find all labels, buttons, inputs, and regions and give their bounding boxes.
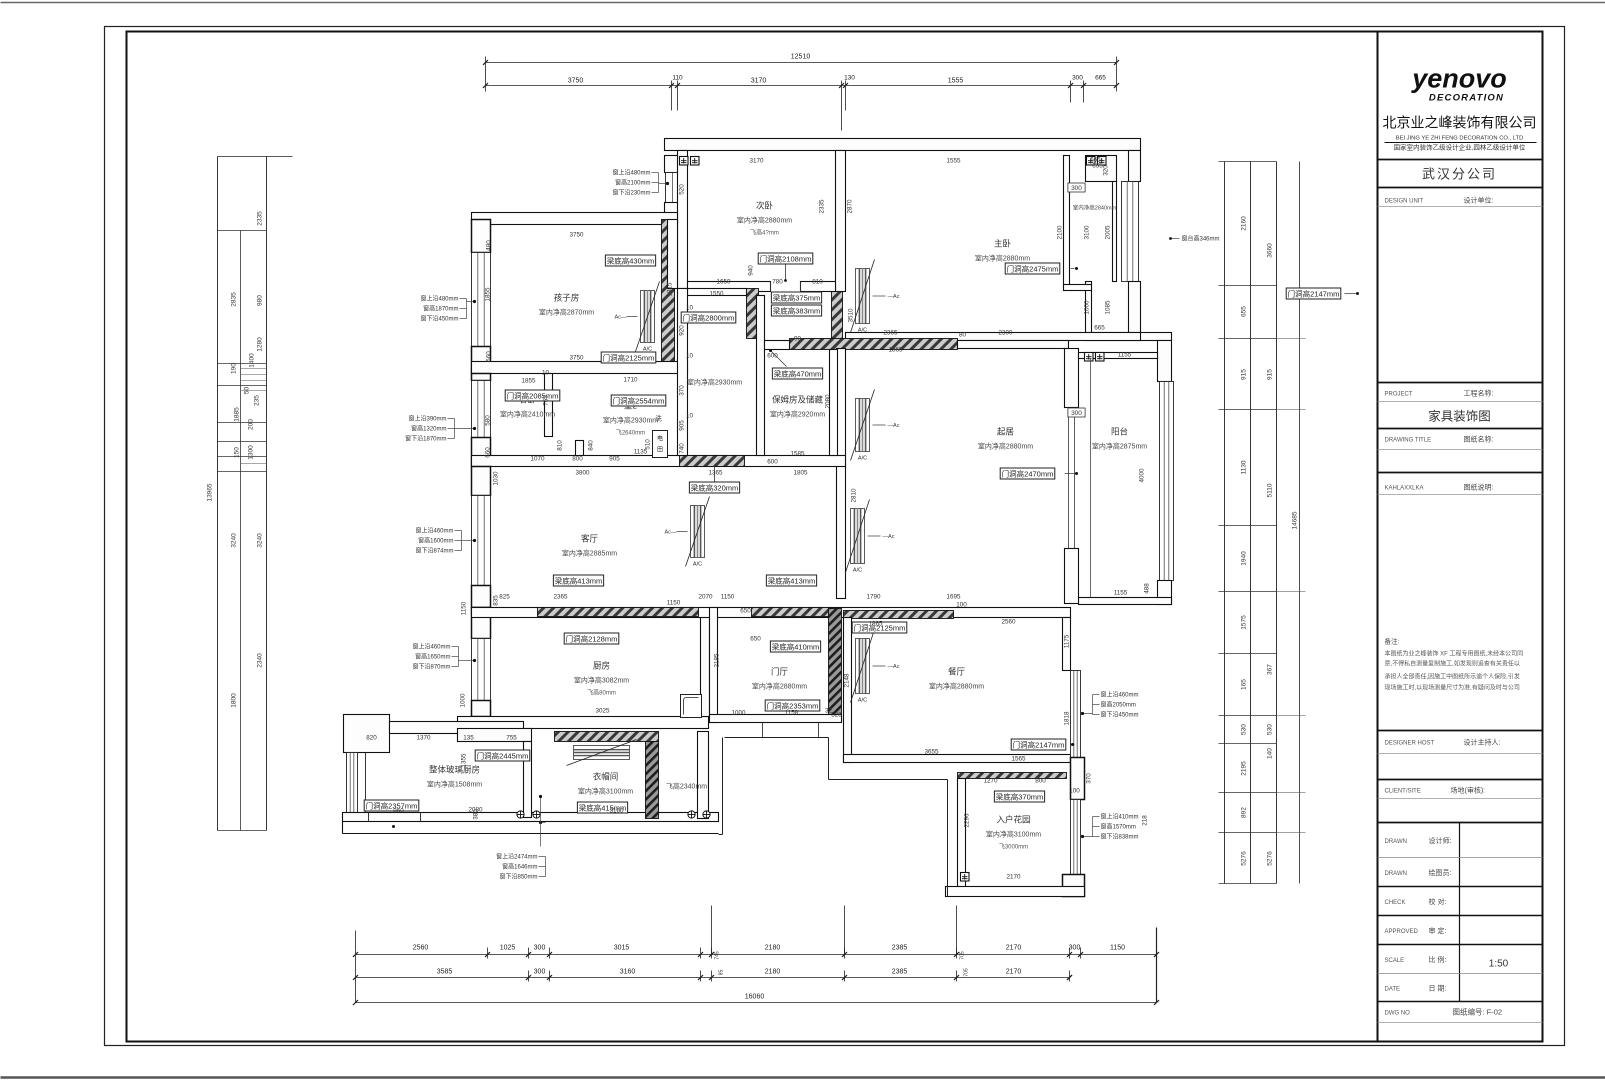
svg-text:3510: 3510 [848, 308, 855, 323]
svg-text:室内净高2930mm: 室内净高2930mm [687, 378, 742, 387]
svg-text:600: 600 [767, 353, 778, 360]
svg-text:2365: 2365 [553, 594, 568, 601]
svg-text:门洞高2147mm: 门洞高2147mm [1013, 740, 1065, 750]
svg-text:2170: 2170 [1006, 874, 1021, 881]
svg-text:1555: 1555 [946, 158, 961, 165]
svg-text:窗上沿390mm: 窗上沿390mm [408, 415, 446, 423]
svg-text:洗: 洗 [655, 414, 662, 423]
svg-text:840: 840 [588, 440, 595, 451]
svg-text:600: 600 [767, 459, 778, 466]
svg-text:810: 810 [812, 279, 823, 286]
svg-text:梁底高410mm: 梁底高410mm [772, 642, 820, 652]
svg-text:2560: 2560 [1001, 619, 1016, 626]
svg-text:5110: 5110 [1267, 483, 1274, 497]
svg-text:1565: 1565 [1011, 756, 1026, 763]
svg-text:5276: 5276 [1241, 851, 1248, 866]
svg-text:1000: 1000 [1084, 300, 1091, 315]
svg-text:2385: 2385 [892, 969, 908, 976]
svg-text:920: 920 [679, 325, 686, 336]
svg-text:APPROVED: APPROVED [1385, 929, 1419, 935]
svg-text:1025: 1025 [500, 945, 516, 952]
svg-text:窗下沿230mm: 窗下沿230mm [612, 189, 650, 197]
svg-text:设计单位:: 设计单位: [1464, 196, 1494, 205]
svg-text:DWG NO: DWG NO [1385, 1011, 1411, 1017]
svg-text:2005: 2005 [1105, 225, 1112, 240]
svg-text:门厅: 门厅 [771, 667, 789, 677]
svg-text:整体玻璃厨房: 整体玻璃厨房 [429, 765, 480, 775]
svg-text:飞3000mm: 飞3000mm [999, 844, 1028, 851]
svg-text:2296: 2296 [964, 813, 971, 828]
svg-text:1790: 1790 [866, 594, 881, 601]
svg-text:300: 300 [1071, 185, 1082, 192]
svg-text:300: 300 [1071, 410, 1082, 417]
svg-text:140: 140 [1267, 748, 1274, 759]
svg-text:1695: 1695 [946, 594, 961, 601]
svg-text:窗高1650mm: 窗高1650mm [415, 653, 450, 661]
svg-text:905: 905 [679, 420, 686, 431]
svg-text:飞高2340mm: 飞高2340mm [666, 782, 707, 791]
svg-text:CHECK: CHECK [1385, 900, 1406, 906]
svg-text:2560: 2560 [413, 945, 429, 952]
svg-text:800: 800 [572, 456, 583, 463]
svg-text:门洞高2554mm: 门洞高2554mm [613, 396, 665, 406]
svg-text:580: 580 [485, 415, 492, 426]
svg-text:门洞高2800mm: 门洞高2800mm [683, 313, 735, 323]
svg-text:1805: 1805 [793, 470, 808, 477]
svg-text:370: 370 [679, 385, 686, 396]
svg-text:1030: 1030 [493, 471, 500, 486]
svg-text:1585: 1585 [790, 451, 805, 458]
svg-text:—Ac: —Ac [888, 664, 900, 670]
svg-text:窗上沿410mm: 窗上沿410mm [1101, 813, 1139, 821]
svg-text:A/C: A/C [858, 698, 867, 704]
svg-text:A/C: A/C [693, 562, 702, 568]
svg-text:1150: 1150 [667, 600, 681, 607]
svg-text:DESIGN UNIT: DESIGN UNIT [1385, 199, 1424, 205]
svg-text:90: 90 [794, 336, 802, 343]
svg-text:2100: 2100 [1057, 225, 1064, 240]
svg-text:1575: 1575 [1241, 615, 1248, 630]
svg-text:武汉分公司: 武汉分公司 [1422, 167, 1497, 182]
svg-text:530: 530 [1241, 724, 1248, 735]
svg-text:2148: 2148 [844, 673, 851, 688]
svg-text:530: 530 [1267, 724, 1274, 735]
svg-text:2070: 2070 [698, 594, 713, 601]
svg-text:1815: 1815 [667, 282, 674, 297]
svg-text:50: 50 [244, 387, 251, 395]
svg-text:480: 480 [486, 240, 493, 251]
svg-text:13965: 13965 [207, 483, 214, 501]
svg-text:窗高1320mm: 窗高1320mm [411, 425, 446, 433]
svg-text:室内净高2880mm: 室内净高2880mm [975, 254, 1030, 263]
svg-text:655: 655 [1241, 306, 1248, 317]
svg-text:200: 200 [248, 419, 255, 430]
svg-text:3100: 3100 [1084, 225, 1091, 240]
svg-text:阳台: 阳台 [1111, 427, 1128, 437]
svg-text:意,不得私自测量复制施工,如发现则追查有关责任以: 意,不得私自测量复制施工,如发现则追查有关责任以 [1385, 660, 1520, 668]
svg-text:1130: 1130 [1241, 460, 1248, 474]
svg-text:1085: 1085 [1105, 300, 1112, 315]
svg-text:4000: 4000 [1139, 468, 1146, 483]
svg-text:门洞高2357mm: 门洞高2357mm [366, 801, 418, 811]
svg-text:218: 218 [1142, 815, 1149, 826]
svg-text:窗下沿450mm: 窗下沿450mm [420, 315, 458, 323]
svg-text:衣帽间: 衣帽间 [593, 772, 619, 782]
svg-text:3170: 3170 [749, 158, 764, 165]
svg-text:BEI JING YE ZHI FENG DECORATIO: BEI JING YE ZHI FENG DECORATION CO., LTD [1396, 136, 1524, 142]
svg-text:380: 380 [473, 809, 480, 820]
svg-text:Ac—: Ac— [615, 315, 627, 321]
svg-text:2180: 2180 [765, 969, 781, 976]
svg-text:田: 田 [657, 447, 663, 454]
svg-text:745: 745 [715, 951, 721, 960]
svg-text:DRAWING TITLE: DRAWING TITLE [1385, 438, 1432, 444]
svg-text:800: 800 [1035, 778, 1046, 785]
svg-text:1855: 1855 [485, 287, 492, 302]
svg-text:家具装饰图: 家具装饰图 [1428, 409, 1491, 424]
svg-text:190: 190 [231, 363, 238, 374]
svg-text:DRAWN: DRAWN [1385, 839, 1407, 845]
svg-text:10: 10 [686, 413, 694, 420]
svg-text:承担人全部责任,因施工中图纸所示逾个人保险,引发: 承担人全部责任,因施工中图纸所示逾个人保险,引发 [1385, 673, 1520, 681]
svg-text:门洞高2147mm: 门洞高2147mm [1288, 289, 1340, 299]
svg-text:1710: 1710 [623, 377, 638, 384]
svg-text:1270: 1270 [983, 778, 998, 785]
svg-text:510: 510 [645, 439, 652, 450]
svg-text:3160: 3160 [609, 808, 624, 815]
svg-text:1155: 1155 [1118, 352, 1132, 359]
svg-text:2170: 2170 [1006, 969, 1022, 976]
svg-text:130: 130 [844, 75, 855, 82]
svg-text:915: 915 [1241, 369, 1248, 380]
svg-text:1550: 1550 [709, 291, 724, 298]
svg-text:SCALE: SCALE [1385, 958, 1405, 964]
svg-text:915: 915 [1267, 369, 1274, 380]
svg-text:1400: 1400 [249, 353, 256, 368]
svg-text:PROJECT: PROJECT [1385, 392, 1413, 398]
svg-text:1300: 1300 [248, 445, 255, 460]
svg-text:3585: 3585 [437, 969, 453, 976]
svg-text:窗下沿450mm: 窗下沿450mm [1101, 711, 1139, 719]
svg-text:DRAWN: DRAWN [1385, 871, 1407, 877]
svg-text:755: 755 [506, 735, 517, 742]
svg-text:2080: 2080 [825, 394, 832, 409]
svg-text:孩子房: 孩子房 [554, 293, 580, 303]
svg-text:起居: 起居 [997, 427, 1014, 437]
svg-text:窗高1870mm: 窗高1870mm [423, 305, 458, 313]
svg-text:1940: 1940 [1241, 551, 1248, 566]
svg-text:场地(审核):: 场地(审核): [1451, 786, 1486, 795]
svg-text:165: 165 [1241, 679, 1248, 690]
svg-text:窗下沿870mm: 窗下沿870mm [412, 663, 450, 671]
svg-text:窗上沿460mm: 窗上沿460mm [415, 527, 453, 535]
svg-text:设计师:: 设计师: [1429, 836, 1452, 845]
svg-text:梁底高430mm: 梁底高430mm [607, 256, 655, 266]
svg-text:室内净高2875mm: 室内净高2875mm [1092, 442, 1147, 451]
svg-text:1818: 1818 [1064, 711, 1071, 726]
svg-text:320: 320 [1103, 165, 1110, 176]
svg-text:窗高1570mm: 窗高1570mm [1101, 823, 1136, 831]
svg-text:300: 300 [534, 969, 546, 976]
svg-text:1000: 1000 [460, 693, 467, 708]
svg-text:次卧: 次卧 [756, 201, 774, 211]
svg-text:梁底高413mm: 梁底高413mm [768, 576, 816, 586]
svg-text:主卧: 主卧 [994, 239, 1012, 249]
svg-text:窗高1600mm: 窗高1600mm [418, 537, 453, 545]
svg-text:2870: 2870 [847, 199, 854, 214]
svg-text:2365: 2365 [883, 330, 898, 337]
svg-text:300: 300 [1072, 75, 1083, 82]
svg-text:825: 825 [499, 594, 510, 601]
svg-text:85: 85 [719, 970, 725, 976]
svg-text:14685: 14685 [1292, 511, 1299, 529]
svg-text:室内净高1508mm: 室内净高1508mm [427, 780, 482, 789]
svg-text:367: 367 [1267, 664, 1274, 675]
svg-text:图纸说明:: 图纸说明: [1464, 483, 1494, 492]
svg-text:1150: 1150 [721, 594, 735, 601]
svg-text:300: 300 [534, 945, 546, 952]
svg-text:门洞高2445mm: 门洞高2445mm [477, 751, 529, 761]
svg-text:—Ac: —Ac [888, 294, 900, 300]
svg-text:窗台高346mm: 窗台高346mm [1182, 235, 1220, 243]
svg-text:940: 940 [748, 265, 755, 276]
svg-text:备注:: 备注: [1385, 637, 1400, 646]
svg-text:2185: 2185 [714, 653, 721, 668]
svg-text:2385: 2385 [892, 945, 908, 952]
svg-text:日 期:: 日 期: [1429, 985, 1447, 993]
svg-text:3170: 3170 [751, 78, 767, 85]
svg-text:665: 665 [1090, 157, 1101, 164]
svg-text:本图纸为业之峰装饰 XF 工程专用图纸,未经本公司同: 本图纸为业之峰装饰 XF 工程专用图纸,未经本公司同 [1385, 650, 1524, 658]
svg-text:1150: 1150 [461, 601, 468, 615]
svg-text:A/C: A/C [858, 456, 867, 462]
svg-text:窗上沿480mm: 窗上沿480mm [612, 169, 650, 177]
svg-text:780: 780 [772, 279, 783, 286]
svg-text:窗下沿838mm: 窗下沿838mm [1101, 833, 1139, 841]
svg-text:1000: 1000 [731, 710, 746, 717]
svg-text:室内净高2870mm: 室内净高2870mm [539, 308, 594, 317]
svg-text:客厅: 客厅 [581, 534, 599, 544]
svg-text:室内净高2885mm: 室内净高2885mm [562, 549, 617, 558]
svg-text:80: 80 [959, 332, 967, 339]
svg-text:电: 电 [657, 435, 663, 443]
svg-text:2195: 2195 [1241, 761, 1248, 776]
svg-text:1555: 1555 [948, 78, 964, 85]
svg-text:660: 660 [485, 447, 492, 458]
svg-text:1155: 1155 [1114, 590, 1128, 597]
svg-text:门洞高2475mm: 门洞高2475mm [1007, 264, 1059, 274]
svg-text:窗高2100mm: 窗高2100mm [615, 179, 650, 187]
svg-text:1865: 1865 [888, 347, 903, 354]
svg-text:A/C: A/C [858, 328, 867, 334]
svg-text:绘图员:: 绘图员: [1429, 868, 1452, 877]
svg-text:校 对:: 校 对: [1429, 897, 1447, 906]
svg-text:审 定:: 审 定: [1429, 926, 1447, 935]
svg-text:2335: 2335 [819, 199, 826, 214]
svg-text:835: 835 [493, 595, 500, 606]
svg-text:328: 328 [831, 712, 842, 719]
svg-text:1280: 1280 [257, 337, 264, 352]
svg-text:3750: 3750 [569, 232, 584, 239]
svg-text:门洞高2085mm: 门洞高2085mm [507, 391, 559, 401]
svg-text:980: 980 [257, 295, 264, 306]
svg-text:室内净高3100mm: 室内净高3100mm [578, 787, 633, 796]
svg-text:1650: 1650 [716, 279, 731, 286]
svg-text:1158: 1158 [785, 710, 799, 717]
svg-text:12510: 12510 [791, 54, 811, 61]
svg-text:905: 905 [609, 456, 620, 463]
svg-text:2340: 2340 [257, 653, 264, 668]
svg-text:3025: 3025 [595, 708, 610, 715]
svg-text:100: 100 [1069, 788, 1080, 795]
svg-text:2160: 2160 [1241, 216, 1248, 231]
svg-text:室内净高2880mm: 室内净高2880mm [978, 442, 1033, 451]
svg-text:窗下沿850mm: 窗下沿850mm [499, 873, 537, 881]
svg-text:892: 892 [1241, 807, 1248, 818]
svg-text:520: 520 [679, 184, 686, 195]
svg-text:梁底高413mm: 梁底高413mm [555, 576, 603, 586]
svg-text:窗上沿480mm: 窗上沿480mm [420, 295, 458, 303]
svg-text:保姆房及储藏: 保姆房及储藏 [772, 395, 824, 405]
svg-text:3800: 3800 [575, 470, 590, 477]
svg-text:1070: 1070 [530, 456, 545, 463]
svg-text:飞高4?mm: 飞高4?mm [750, 229, 779, 237]
svg-text:1865: 1865 [868, 621, 883, 628]
svg-text:135: 135 [463, 735, 474, 742]
svg-text:室内净高2930mm: 室内净高2930mm [603, 416, 658, 425]
svg-text:门洞高2125mm: 门洞高2125mm [603, 353, 655, 363]
svg-text:2170: 2170 [1006, 945, 1022, 952]
svg-text:810: 810 [557, 440, 564, 451]
svg-text:Ac—: Ac— [665, 530, 677, 536]
svg-text:110: 110 [672, 75, 683, 82]
svg-text:300: 300 [1069, 945, 1081, 952]
svg-text:室内净高3100mm: 室内净高3100mm [986, 830, 1041, 839]
svg-text:1885: 1885 [234, 407, 241, 422]
svg-text:2300: 2300 [998, 330, 1013, 337]
svg-text:梁底高375mm: 梁底高375mm [773, 293, 821, 303]
svg-text:2835: 2835 [231, 292, 238, 307]
svg-text:梁底高383mm: 梁底高383mm [773, 306, 821, 316]
svg-text:1:50: 1:50 [1489, 959, 1509, 970]
svg-text:KAHLAXXLKA: KAHLAXXLKA [1385, 486, 1424, 492]
svg-text:1175: 1175 [1064, 634, 1071, 648]
svg-text:门洞高2470mm: 门洞高2470mm [1002, 469, 1054, 479]
svg-text:窗上沿460mm: 窗上沿460mm [1101, 691, 1139, 699]
svg-text:窗下沿874mm: 窗下沿874mm [415, 547, 453, 555]
svg-text:705: 705 [964, 968, 970, 977]
svg-text:3750: 3750 [568, 78, 584, 85]
svg-text:960: 960 [393, 808, 404, 815]
svg-text:室内净高2410mm: 室内净高2410mm [500, 410, 555, 419]
svg-text:国家室内装饰乙级设计企业,园林乙级设计单位: 国家室内装饰乙级设计企业,园林乙级设计单位 [1394, 143, 1526, 152]
svg-text:665: 665 [1095, 75, 1106, 82]
svg-text:CLIENT/SITE: CLIENT/SITE [1385, 789, 1421, 795]
svg-text:560: 560 [486, 351, 493, 362]
svg-text:梁底高320mm: 梁底高320mm [691, 483, 739, 493]
svg-text:1800: 1800 [231, 693, 238, 708]
svg-text:10: 10 [686, 305, 694, 312]
svg-text:665: 665 [1094, 325, 1105, 332]
svg-text:室内净高2920mm: 室内净高2920mm [770, 410, 825, 419]
svg-text:窗高1646mm: 窗高1646mm [502, 863, 537, 871]
svg-text:3660: 3660 [1267, 243, 1274, 258]
svg-text:DECORATION: DECORATION [1429, 93, 1504, 104]
svg-text:室内净高2840mm: 室内净高2840mm [1073, 204, 1117, 212]
svg-text:A/C: A/C [853, 568, 862, 574]
svg-text:—Ac: —Ac [883, 534, 895, 540]
svg-text:100: 100 [956, 602, 967, 609]
svg-text:北京业之峰装饰有限公司: 北京业之峰装饰有限公司 [1383, 115, 1537, 131]
svg-text:235: 235 [254, 395, 261, 406]
svg-text:梁底高370mm: 梁底高370mm [996, 792, 1044, 802]
svg-text:图纸编号: F-02: 图纸编号: F-02 [1453, 1007, 1503, 1017]
svg-text:3750: 3750 [569, 355, 584, 362]
svg-text:厨房: 厨房 [593, 661, 610, 671]
svg-text:1355: 1355 [461, 753, 468, 768]
svg-text:765: 765 [543, 395, 550, 406]
svg-text:10: 10 [686, 353, 694, 360]
svg-text:室内净高2880mm: 室内净高2880mm [929, 682, 984, 691]
svg-text:室内净高2880mm: 室内净高2880mm [737, 216, 792, 225]
svg-text:5276: 5276 [1267, 851, 1274, 866]
svg-text:DESIGNER HOST: DESIGNER HOST [1385, 741, 1435, 747]
svg-text:370: 370 [1086, 773, 1093, 784]
svg-text:门洞高2128mm: 门洞高2128mm [566, 634, 618, 644]
svg-text:16060: 16060 [745, 994, 765, 1001]
svg-text:室内净高2880mm: 室内净高2880mm [752, 682, 807, 691]
svg-text:3015: 3015 [614, 945, 630, 952]
svg-text:2810: 2810 [851, 488, 858, 503]
svg-text:设计主持人:: 设计主持人: [1464, 738, 1501, 747]
svg-text:650: 650 [740, 608, 751, 615]
svg-text:比 例:: 比 例: [1429, 955, 1447, 964]
svg-text:餐厅: 餐厅 [948, 667, 966, 677]
svg-text:2180: 2180 [765, 945, 781, 952]
svg-text:yenovo: yenovo [1410, 64, 1507, 94]
svg-text:650: 650 [750, 636, 761, 643]
svg-text:1365: 1365 [708, 470, 723, 477]
svg-text:2335: 2335 [257, 211, 264, 226]
svg-text:3240: 3240 [257, 533, 264, 548]
svg-text:1150: 1150 [1110, 945, 1125, 952]
svg-text:1855: 1855 [521, 378, 536, 385]
svg-text:3240: 3240 [231, 533, 238, 548]
svg-text:梁底高470mm: 梁底高470mm [774, 369, 822, 379]
svg-text:10: 10 [542, 370, 550, 377]
svg-text:入户花园: 入户花园 [996, 815, 1030, 825]
svg-text:工程名称:: 工程名称: [1464, 389, 1494, 398]
svg-text:飞2640mm: 飞2640mm [616, 430, 645, 437]
svg-text:3160: 3160 [620, 969, 636, 976]
svg-text:705: 705 [960, 951, 966, 960]
svg-text:现场施工时,以现场测量尺寸为准,有疑问及时与公司: 现场施工时,以现场测量尺寸为准,有疑问及时与公司 [1385, 684, 1520, 692]
svg-text:150: 150 [234, 447, 241, 458]
svg-text:门洞高2108mm: 门洞高2108mm [760, 254, 812, 264]
svg-text:飞高80mm: 飞高80mm [587, 689, 616, 697]
svg-text:窗下沿1870mm: 窗下沿1870mm [405, 435, 446, 443]
svg-text:740: 740 [679, 443, 686, 454]
svg-text:3655: 3655 [924, 749, 939, 756]
svg-text:窗上沿460mm: 窗上沿460mm [412, 643, 450, 651]
svg-text:1370: 1370 [416, 735, 431, 742]
svg-text:室内净高3082mm: 室内净高3082mm [574, 676, 629, 685]
svg-text:DATE: DATE [1385, 987, 1401, 993]
svg-text:488: 488 [1144, 583, 1151, 594]
svg-text:窗上沿2474mm: 窗上沿2474mm [496, 853, 537, 861]
svg-text:—Ac: —Ac [888, 423, 900, 429]
svg-text:窗高2050mm: 窗高2050mm [1101, 701, 1136, 709]
